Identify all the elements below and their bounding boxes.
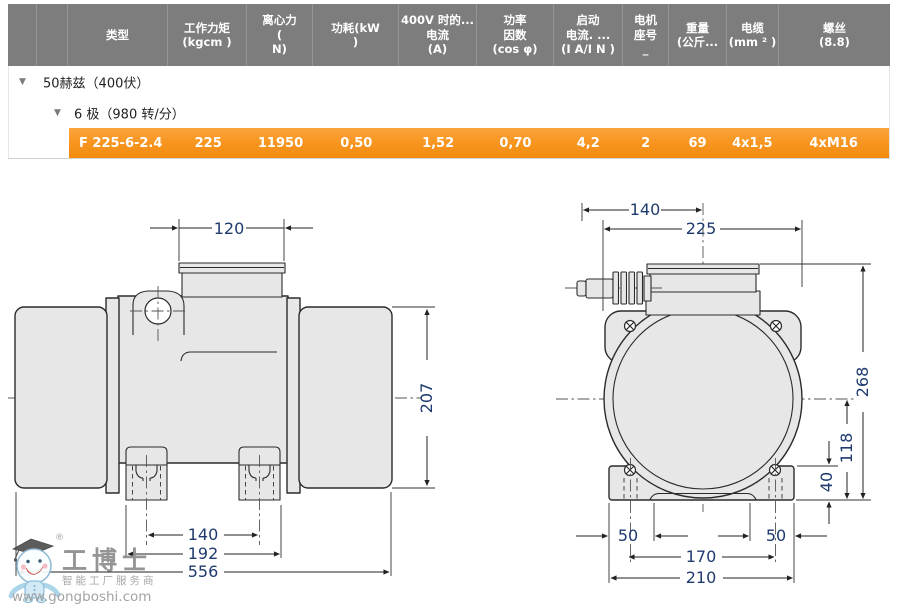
mounting-foot-left [126, 447, 167, 545]
group-row-label: 50赫兹（400伏） [43, 72, 149, 91]
flange-ring-right [287, 298, 300, 493]
col-header-current: 400V 时的... 电流 (A) [399, 4, 477, 66]
weight-cover-left [15, 307, 107, 488]
subgroup-row-label: 6 极（980 转/分） [74, 103, 185, 122]
cell-cable: 4x1,5 [726, 136, 778, 151]
svg-text:210: 210 [686, 568, 717, 587]
registered-mark: ® [55, 533, 64, 543]
dim-base-width: 210 [611, 568, 793, 587]
watermark: ® 工博士 智能工厂服务商 www.gongboshi.com [11, 533, 157, 605]
svg-text:50: 50 [766, 526, 786, 545]
dimension-drawing: 120 207 140 192 [0, 160, 900, 614]
cell-centrifugal-force: 11950 [248, 136, 314, 151]
motor-side-view: 120 207 140 192 [8, 219, 436, 581]
mounting-foot-right [239, 447, 280, 545]
svg-text:170: 170 [686, 547, 717, 566]
motor-end-view: 140 225 268 118 [556, 200, 872, 587]
cell-type: F 225-6-2.4 [69, 136, 169, 151]
cover-screw-bottom-left [625, 465, 636, 476]
watermark-url: www.gongboshi.com [12, 589, 151, 605]
svg-text:192: 192 [188, 544, 219, 563]
dim-foot-height: 40 [797, 441, 838, 524]
dim-gland-to-center: 140 [582, 200, 702, 221]
cell-frame: 2 [623, 136, 669, 151]
collapse-triangle-icon[interactable]: ▼ [19, 76, 26, 86]
svg-text:140: 140 [630, 200, 661, 219]
subgroup-row-6pole[interactable]: ▼ 6 极（980 转/分） [8, 97, 890, 128]
selected-model-row[interactable]: F 225-6-2.4 225 11950 0,50 1,52 0,70 4,2… [8, 128, 890, 158]
col-header-screws: 螺丝 (8.8) [779, 4, 890, 66]
col-header-expand1 [8, 4, 37, 66]
svg-text:50: 50 [618, 526, 638, 545]
cell-screws: 4xM16 [778, 136, 889, 151]
cell-torque: 225 [169, 136, 248, 151]
svg-text:140: 140 [188, 525, 219, 544]
svg-text:556: 556 [188, 562, 219, 581]
terminal-box-front [646, 264, 760, 315]
group-row-50hz[interactable]: ▼ 50赫兹（400伏） [8, 66, 890, 97]
cell-power: 0,50 [313, 136, 399, 151]
svg-text:120: 120 [214, 219, 245, 238]
svg-text:268: 268 [853, 367, 872, 398]
spec-page: 类型 工作力矩 (kgcm ) 离心力 ( N) 功耗(kW ) 400V 时的… [0, 0, 900, 614]
col-header-torque: 工作力矩 (kgcm ) [168, 4, 247, 66]
spec-table: 类型 工作力矩 (kgcm ) 离心力 ( N) 功耗(kW ) 400V 时的… [8, 4, 890, 159]
dim-slot-spacing: 170 [629, 547, 774, 566]
svg-text:225: 225 [686, 219, 717, 238]
col-header-frame: 电机 座号 _ [623, 4, 669, 66]
terminal-box-side [179, 263, 285, 297]
dim-edge-right: 50 [718, 503, 827, 583]
watermark-tagline: 智能工厂服务商 [62, 574, 157, 587]
svg-text:207: 207 [417, 383, 436, 414]
col-header-force: 离心力 ( N) [247, 4, 313, 66]
cell-start-current: 4,2 [554, 136, 623, 151]
col-header-weight: 重量 (公斤... [669, 4, 727, 66]
svg-text:118: 118 [837, 433, 856, 464]
cell-weight: 69 [669, 136, 727, 151]
table-header-row: 类型 工作力矩 (kgcm ) 离心力 ( N) 功耗(kW ) 400V 时的… [8, 4, 890, 66]
col-header-type: 类型 [68, 4, 168, 66]
dim-edge-left: 50 [576, 503, 688, 583]
selected-row-highlight[interactable]: F 225-6-2.4 225 11950 0,50 1,52 0,70 4,2… [69, 128, 889, 158]
cable-gland [565, 272, 662, 304]
watermark-brand: 工博士 [62, 546, 152, 575]
dim-body-height: 207 [392, 307, 436, 488]
col-header-startcurrent: 启动 电流. ... (I A/I N ) [554, 4, 623, 66]
col-header-cosphi: 功率 因数 (cos φ) [477, 4, 554, 66]
cover-screw-top-left [625, 321, 636, 332]
cover-screw-bottom-right [770, 465, 781, 476]
col-header-cable: 电缆 (mm ² ) [727, 4, 779, 66]
flange-ring-left [106, 298, 119, 493]
dim-axis-height: 118 [837, 401, 856, 499]
col-header-expand2 [37, 4, 68, 66]
svg-text:40: 40 [817, 472, 836, 492]
cell-current: 1,52 [399, 136, 477, 151]
col-header-power: 功耗(kW ) [313, 4, 399, 66]
dim-foot-slot-spacing: 140 [149, 525, 258, 544]
collapse-triangle-icon[interactable]: ▼ [54, 107, 61, 117]
cover-screw-top-right [771, 321, 782, 332]
cell-cosphi: 0,70 [477, 136, 554, 151]
weight-cover-right [299, 307, 392, 488]
dim-terminal-box-width: 120 [150, 219, 313, 261]
